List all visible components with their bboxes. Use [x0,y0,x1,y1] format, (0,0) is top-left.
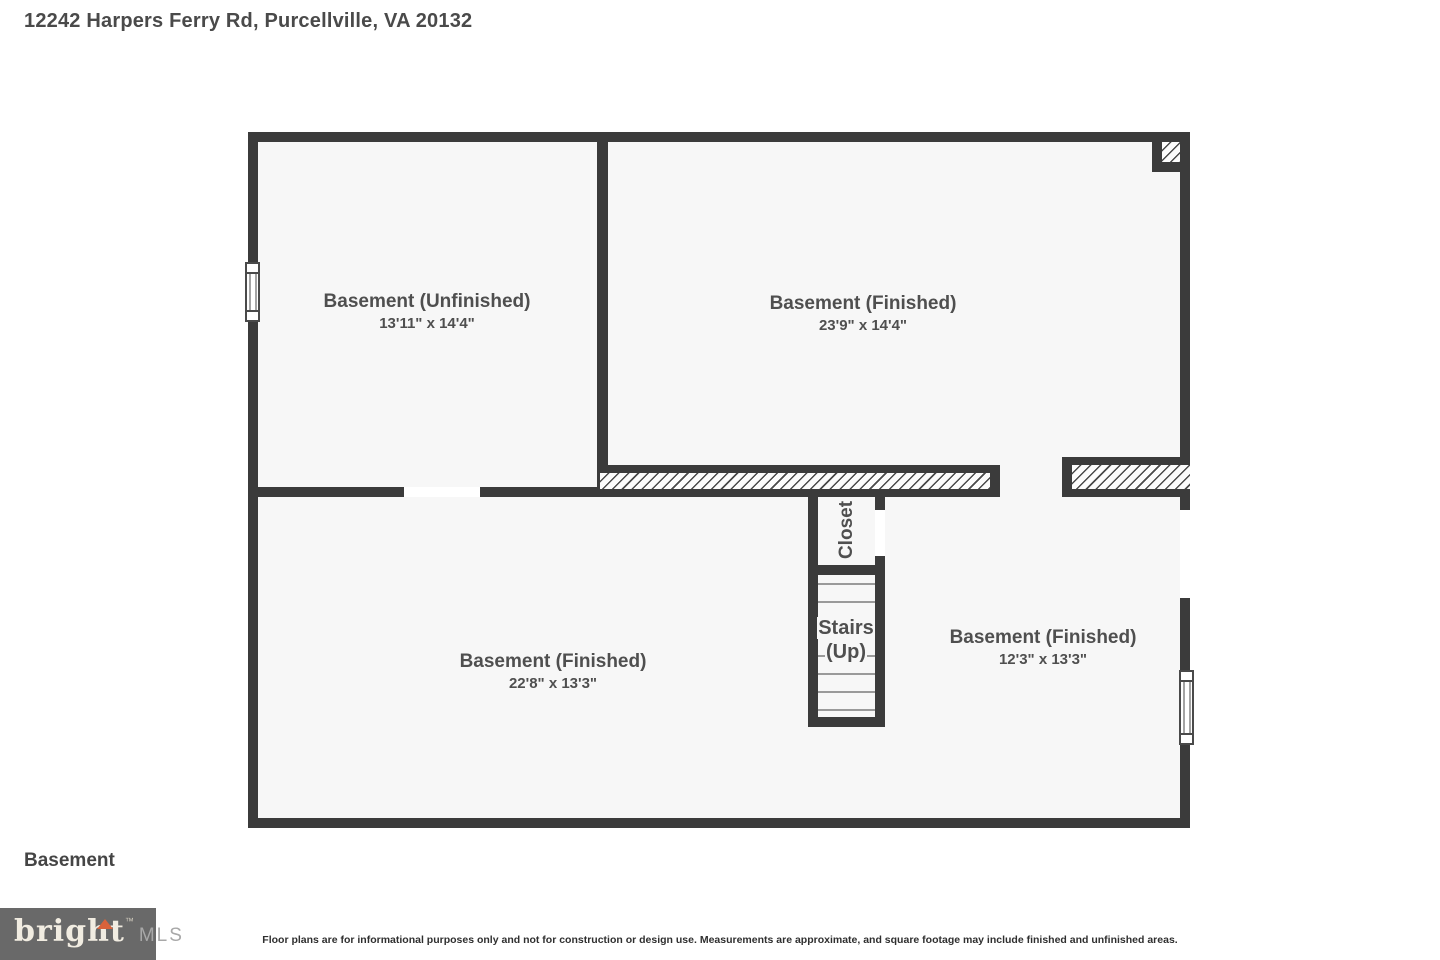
door-opening-right [1180,510,1190,598]
room-dims: 22'8" x 13'3" [403,673,703,695]
wall-left [248,132,258,828]
room-label-finished-top: Basement (Finished) 23'9" x 14'4" [713,293,1013,337]
stair-tread [818,583,875,585]
wall-top [248,132,1190,142]
stair-tread [818,709,875,711]
logo-arrow-icon [97,919,113,929]
door-opening-closet [875,510,885,556]
room-dims: 12'3" x 13'3" [893,649,1193,671]
room-name: Basement (Finished) [893,627,1193,649]
door-opening-unfinished [404,487,480,497]
wall-mid-vertical [597,132,608,497]
room-label-finished-bottom-left: Basement (Finished) 22'8" x 13'3" [403,651,703,695]
floor-name-label: Basement [24,850,115,872]
room-name: Basement (Finished) [403,651,703,673]
wall-stairs-left [808,497,818,727]
stair-tread [818,691,875,693]
window-right [1179,670,1194,745]
page-title: 12242 Harpers Ferry Rd, Purcellville, VA… [24,10,472,33]
wall-closet-divider [808,565,885,575]
hatched-corner-box [1162,142,1180,162]
room-dims: 13'11" x 14'4" [277,313,577,335]
wall-bottom [248,818,1190,828]
room-label-unfinished: Basement (Unfinished) 13'11" x 14'4" [277,291,577,335]
stairs-line1: Stairs [817,617,875,639]
wall-stairs-bottom [808,717,885,727]
window-glass [247,272,258,312]
disclaimer-text: Floor plans are for informational purpos… [0,934,1440,946]
room-dims: 23'9" x 14'4" [713,315,1013,337]
logo-trademark: ™ [125,916,134,926]
stairs-label: Stairs (Up) [796,616,896,664]
closet-label: Closet [836,501,858,559]
hatched-wall-a [600,465,1000,497]
window-glass [1181,680,1192,735]
wall-notch-horizontal [1152,162,1190,172]
window-left [245,262,260,322]
stair-tread [818,601,875,603]
room-name: Basement (Unfinished) [277,291,577,313]
room-name: Basement (Finished) [713,293,1013,315]
stairs-line2: (Up) [825,641,867,663]
stair-tread [818,673,875,675]
room-label-finished-bottom-right: Basement (Finished) 12'3" x 13'3" [893,627,1193,671]
hatched-wall-b [1062,457,1190,497]
